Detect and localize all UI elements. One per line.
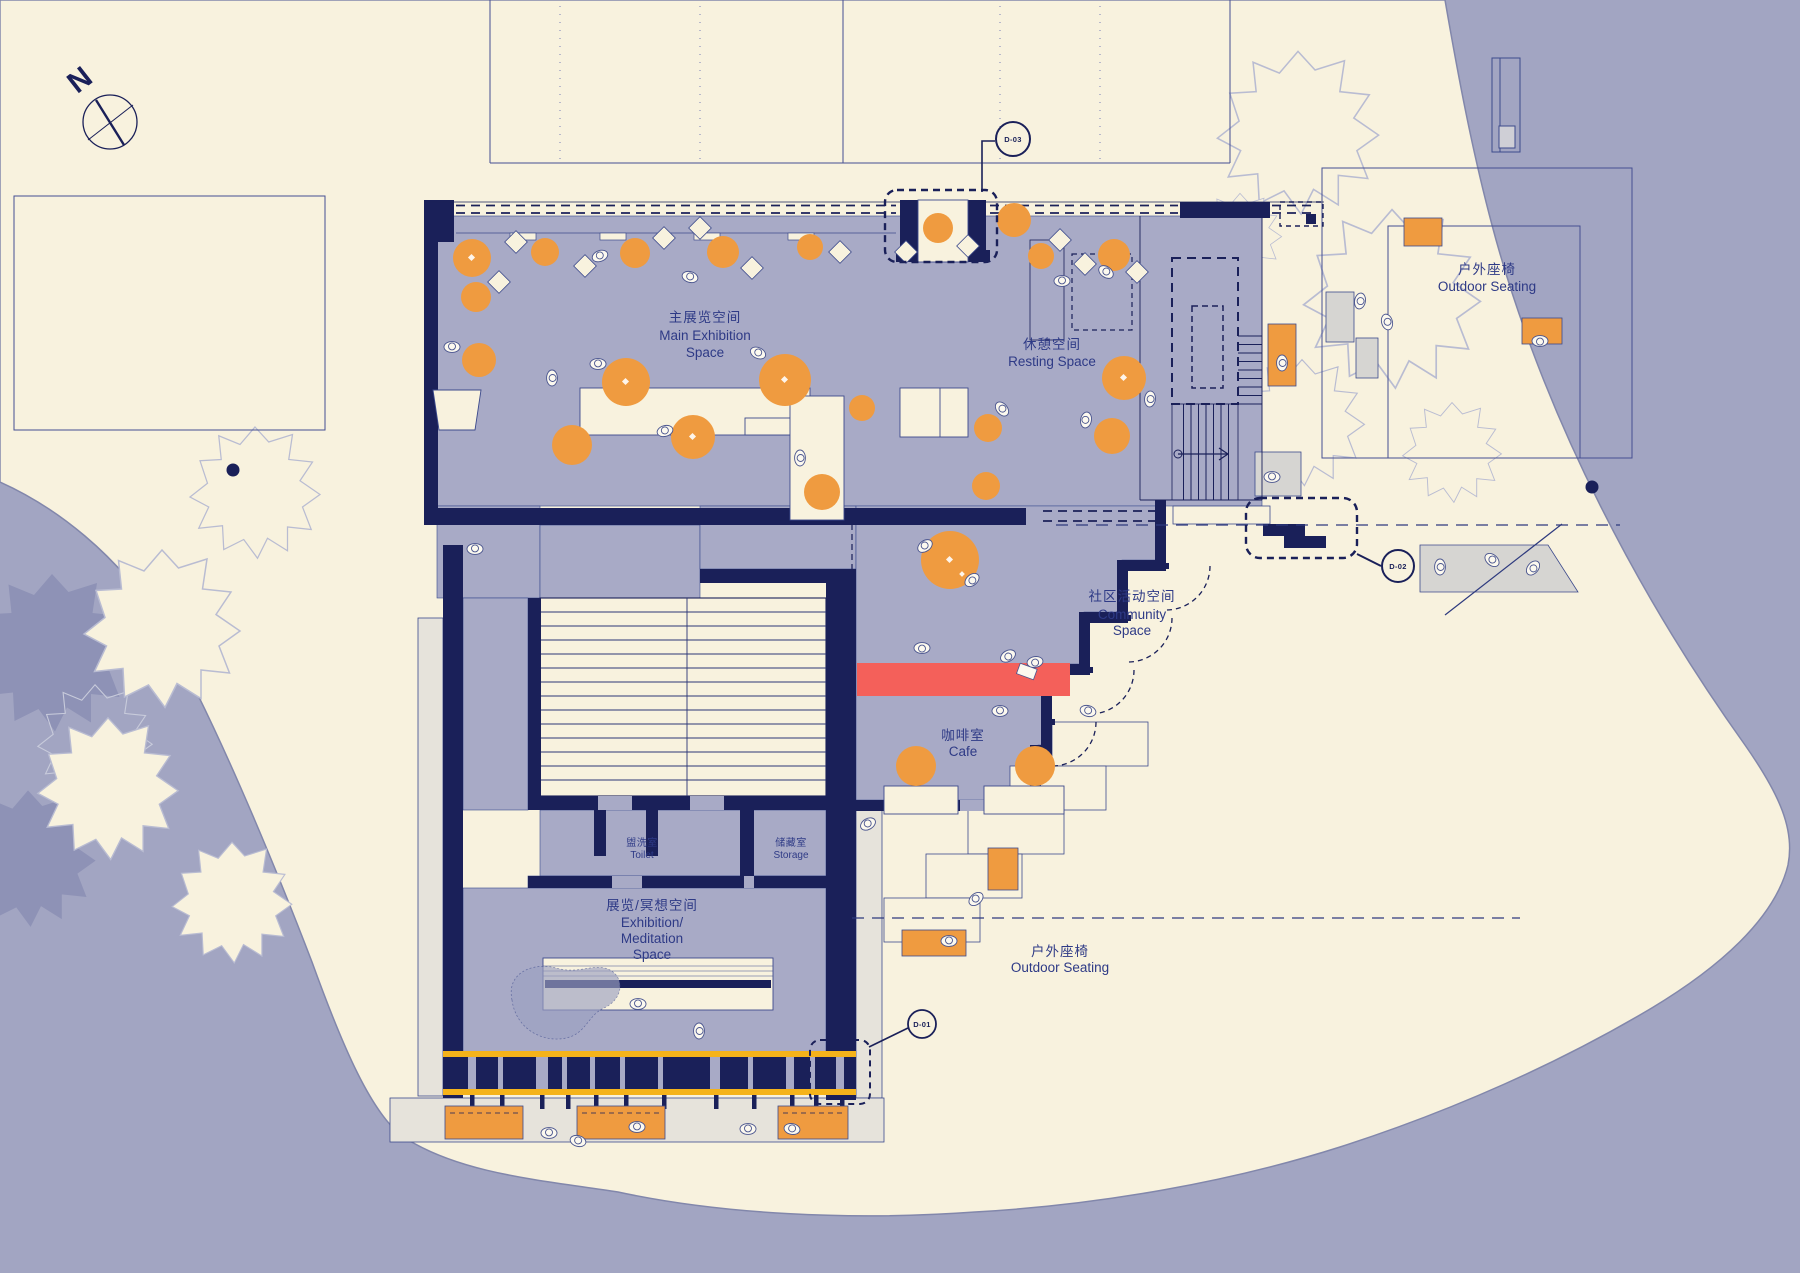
- svg-text:户外座椅: 户外座椅: [1458, 261, 1516, 277]
- marker-label-d02: D-02: [1389, 562, 1406, 571]
- side-table: [433, 390, 481, 430]
- room-label-toilet: 盥洗室 Toilet: [626, 836, 658, 861]
- svg-text:Toilet: Toilet: [630, 850, 654, 861]
- svg-text:户外座椅: 户外座椅: [1031, 943, 1089, 959]
- svg-text:主展览空间: 主展览空间: [669, 310, 742, 325]
- svg-text:Community: Community: [1098, 607, 1167, 622]
- svg-text:Storage: Storage: [773, 850, 808, 861]
- svg-text:Meditation: Meditation: [621, 931, 683, 946]
- svg-text:休憩空间: 休憩空间: [1023, 336, 1081, 352]
- site-dot-west: [227, 464, 240, 477]
- svg-text:Outdoor Seating: Outdoor Seating: [1438, 279, 1536, 294]
- cafe-long-table: [857, 663, 1070, 696]
- svg-text:Space: Space: [686, 345, 724, 360]
- marker-label-d01: D-01: [913, 1020, 930, 1029]
- floor-plan-canvas: D-03 D-02 D-01 主展览空间 Main Exhibition Spa…: [0, 0, 1800, 1273]
- auditorium: [540, 598, 826, 796]
- svg-text:Resting Space: Resting Space: [1008, 354, 1096, 369]
- svg-text:Space: Space: [1113, 623, 1151, 638]
- svg-text:展览/冥想空间: 展览/冥想空间: [606, 898, 698, 913]
- east-entry-slab: [1173, 506, 1270, 524]
- svg-text:储藏室: 储藏室: [775, 836, 807, 849]
- svg-text:Cafe: Cafe: [949, 744, 978, 759]
- svg-text:Space: Space: [633, 947, 671, 962]
- svg-text:Outdoor Seating: Outdoor Seating: [1011, 960, 1109, 975]
- svg-text:社区活动空间: 社区活动空间: [1089, 589, 1176, 604]
- cafe-table: [984, 786, 1064, 814]
- west-walkway: [418, 618, 443, 1096]
- svg-text:Exhibition/: Exhibition/: [621, 915, 684, 930]
- svg-text:盥洗室: 盥洗室: [626, 836, 658, 849]
- svg-text:咖啡室: 咖啡室: [941, 727, 985, 743]
- cafe-table: [884, 786, 958, 814]
- site-plan-svg: D-03 D-02 D-01 主展览空间 Main Exhibition Spa…: [0, 0, 1800, 1273]
- site-dot-east: [1586, 481, 1599, 494]
- marker-label-d03: D-03: [1004, 135, 1021, 144]
- svg-text:Main Exhibition: Main Exhibition: [659, 328, 751, 343]
- room-label-storage: 储藏室 Storage: [773, 836, 808, 861]
